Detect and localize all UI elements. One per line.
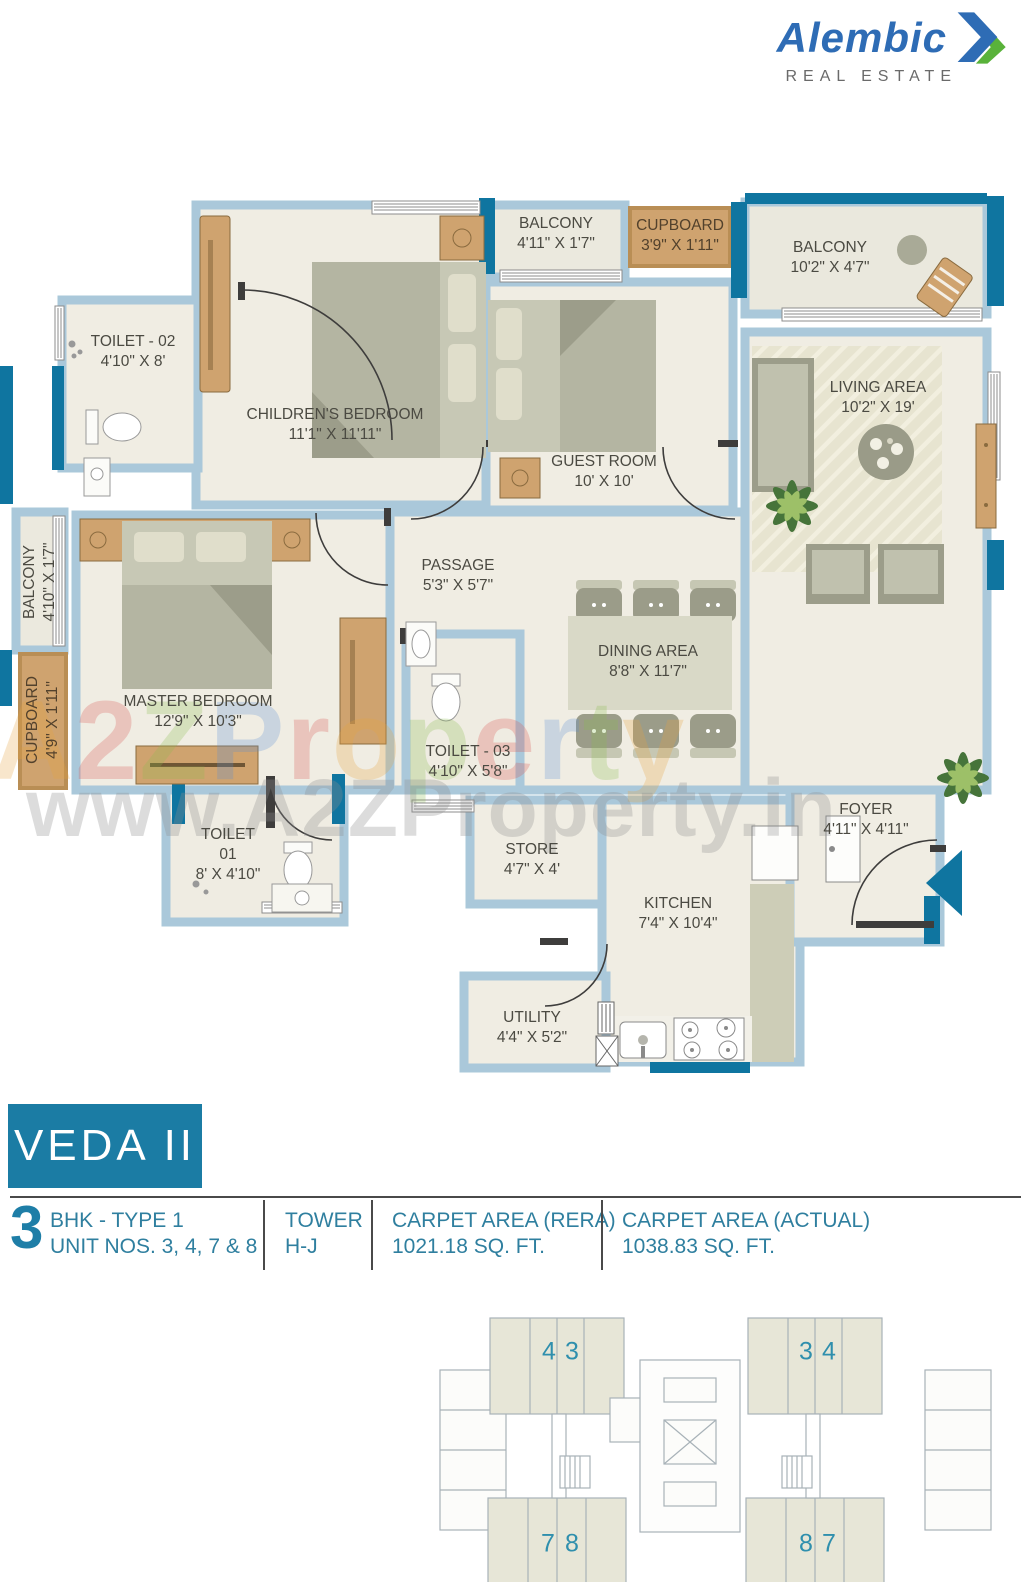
project-title: VEDA II <box>14 1121 196 1171</box>
room-label-master-bedroom: MASTER BEDROOM12'9" X 10'3" <box>124 692 273 732</box>
room-label-utility: UTILITY4'4" X 5'2" <box>497 1008 567 1048</box>
info-divider-horizontal <box>10 1196 1021 1198</box>
info-divider-2 <box>371 1200 373 1270</box>
room-label-balcony-top: BALCONY4'11" X 1'7" <box>517 214 595 254</box>
info-divider-1 <box>263 1200 265 1270</box>
keyplan-unit: 7 <box>541 1530 555 1559</box>
keyplan-unit: 3 <box>799 1338 813 1367</box>
room-label-toilet-03: TOILET - 034'10" X 5'8" <box>426 742 511 782</box>
keyplan-unit: 3 <box>565 1338 579 1367</box>
keyplan-unit: 4 <box>542 1338 556 1367</box>
keyplan-unit: 8 <box>565 1530 579 1559</box>
room-label-guest-room: GUEST ROOM10' X 10' <box>551 452 657 492</box>
keyplan-unit: 8 <box>799 1530 813 1559</box>
room-label-balcony-right: BALCONY10'2" X 4'7" <box>791 238 870 278</box>
plant-icon <box>766 480 818 532</box>
room-label-cupboard-top: CUPBOARD3'9" X 1'11" <box>636 216 724 256</box>
plant-icon <box>937 752 989 804</box>
tower-info: TOWER H-J <box>285 1208 363 1260</box>
room-label-cupboard-left: CUPBOARD4'9" X 1'11" <box>23 676 63 764</box>
room-label-childrens-bedroom: CHILDREN'S BEDROOM11'1" X 11'11" <box>247 405 424 445</box>
room-label-passage: PASSAGE5'3" X 5'7" <box>422 556 495 596</box>
bhk-number: 3 <box>10 1198 43 1258</box>
room-label-living-area: LIVING AREA10'2" X 19' <box>830 378 926 418</box>
room-label-kitchen: KITCHEN7'4" X 10'4" <box>639 894 718 934</box>
room-label-balcony-left: BALCONY4'10" X 1'7" <box>20 543 60 622</box>
unit-info: BHK - TYPE 1 UNIT NOS. 3, 4, 7 & 8 <box>50 1208 257 1260</box>
room-label-toilet-01: TOILET018' X 4'10" <box>196 825 261 885</box>
room-label-store: STORE4'7" X 4' <box>504 840 560 880</box>
info-bar: 3 BHK - TYPE 1 UNIT NOS. 3, 4, 7 & 8 TOW… <box>0 1200 1031 1272</box>
floor-plan-page: Alembic REAL ESTATE <box>0 0 1031 1582</box>
project-title-box: VEDA II <box>8 1104 202 1188</box>
room-label-dining-area: DINING AREA8'8" X 11'7" <box>598 642 698 682</box>
keyplan-unit: 4 <box>822 1338 836 1367</box>
room-label-toilet-02: TOILET - 024'10" X 8' <box>91 332 176 372</box>
room-label-foyer: FOYER4'11" X 4'11" <box>823 800 908 840</box>
keyplan-unit: 7 <box>822 1530 836 1559</box>
carpet-area-rera: CARPET AREA (RERA) 1021.18 SQ. FT. <box>392 1208 616 1260</box>
floor-plan-drawing <box>0 0 1031 1582</box>
info-divider-3 <box>601 1200 603 1270</box>
key-plan <box>440 1318 991 1582</box>
carpet-area-actual: CARPET AREA (ACTUAL) 1038.83 SQ. FT. <box>622 1208 870 1260</box>
